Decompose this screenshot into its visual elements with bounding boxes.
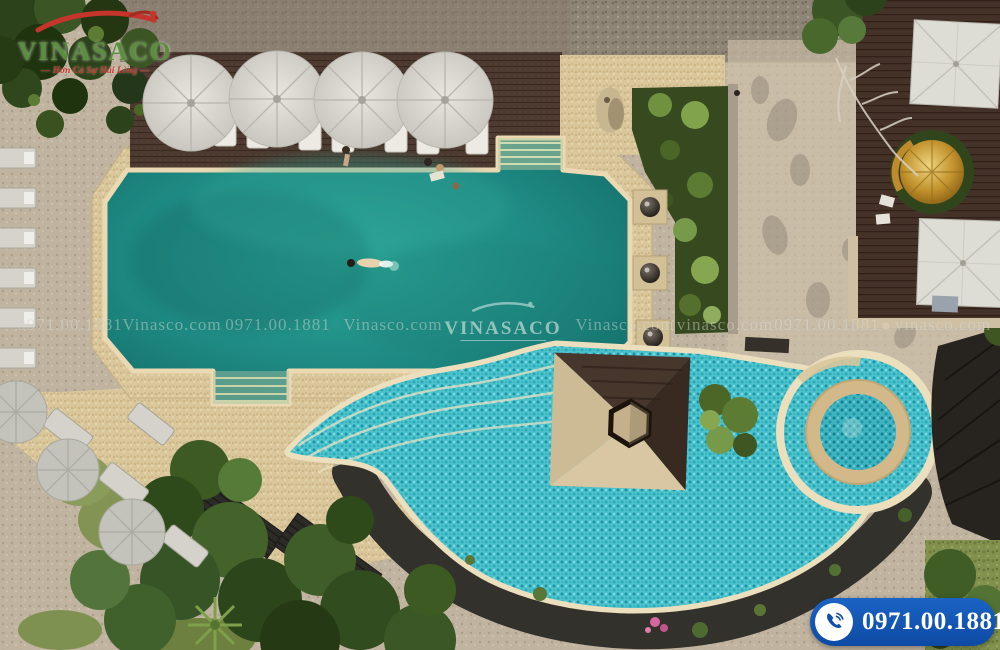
square-umbrella xyxy=(910,20,1000,108)
phone-number: 0971.00.1881 xyxy=(862,608,1000,636)
umbrella xyxy=(37,439,99,501)
bench xyxy=(745,337,790,353)
phone-contact-badge[interactable]: 0971.00.1881 xyxy=(810,598,996,646)
pool-steps-top xyxy=(498,138,563,170)
phone-icon xyxy=(815,603,853,641)
logo-tagline: — Hơn Cả Sự Hài Lòng — xyxy=(10,66,180,76)
straw-dome xyxy=(890,130,974,214)
square-umbrella xyxy=(916,218,1000,307)
watermark-text: 0971.00.1881 xyxy=(774,315,880,335)
swoosh-icon xyxy=(468,300,538,314)
umbrella xyxy=(314,52,410,148)
umbrella xyxy=(99,499,165,565)
small-animal xyxy=(734,90,740,96)
stone-statue xyxy=(596,87,624,133)
watermark-text: Vinasco.com xyxy=(122,315,221,335)
pyramid-roof xyxy=(550,353,691,491)
person xyxy=(883,323,890,330)
pool-steps-bottom xyxy=(213,371,289,404)
person xyxy=(342,146,350,154)
vinasaco-logo: VINASACO — Hơn Cả Sự Hài Lòng — xyxy=(10,6,180,76)
watermark-text: 0971.00.1881 xyxy=(17,315,123,335)
watermark-text: 0971.00.1881 xyxy=(225,315,331,335)
watermark-text: vinasco.com xyxy=(677,315,773,335)
umbrella xyxy=(229,51,325,147)
umbrella xyxy=(397,52,493,148)
deck-table xyxy=(932,296,959,313)
logo-swoosh-icon xyxy=(20,6,170,34)
watermark-text: Vinasco.com xyxy=(575,315,674,335)
person xyxy=(453,183,460,190)
watermark-text: Vinasco.com xyxy=(343,315,442,335)
center-watermark-logo: VINASACO xyxy=(444,300,561,344)
spa-pool xyxy=(776,350,940,514)
aerial-resort-pool-photo: 0971.00.1881 Vinasco.com 0971.00.1881 Vi… xyxy=(0,0,1000,650)
watermark-text: vinasco.com xyxy=(895,315,991,335)
logo-text: VINASACO xyxy=(10,39,180,65)
person xyxy=(424,158,432,166)
center-watermark-text: VINASACO xyxy=(444,319,561,338)
